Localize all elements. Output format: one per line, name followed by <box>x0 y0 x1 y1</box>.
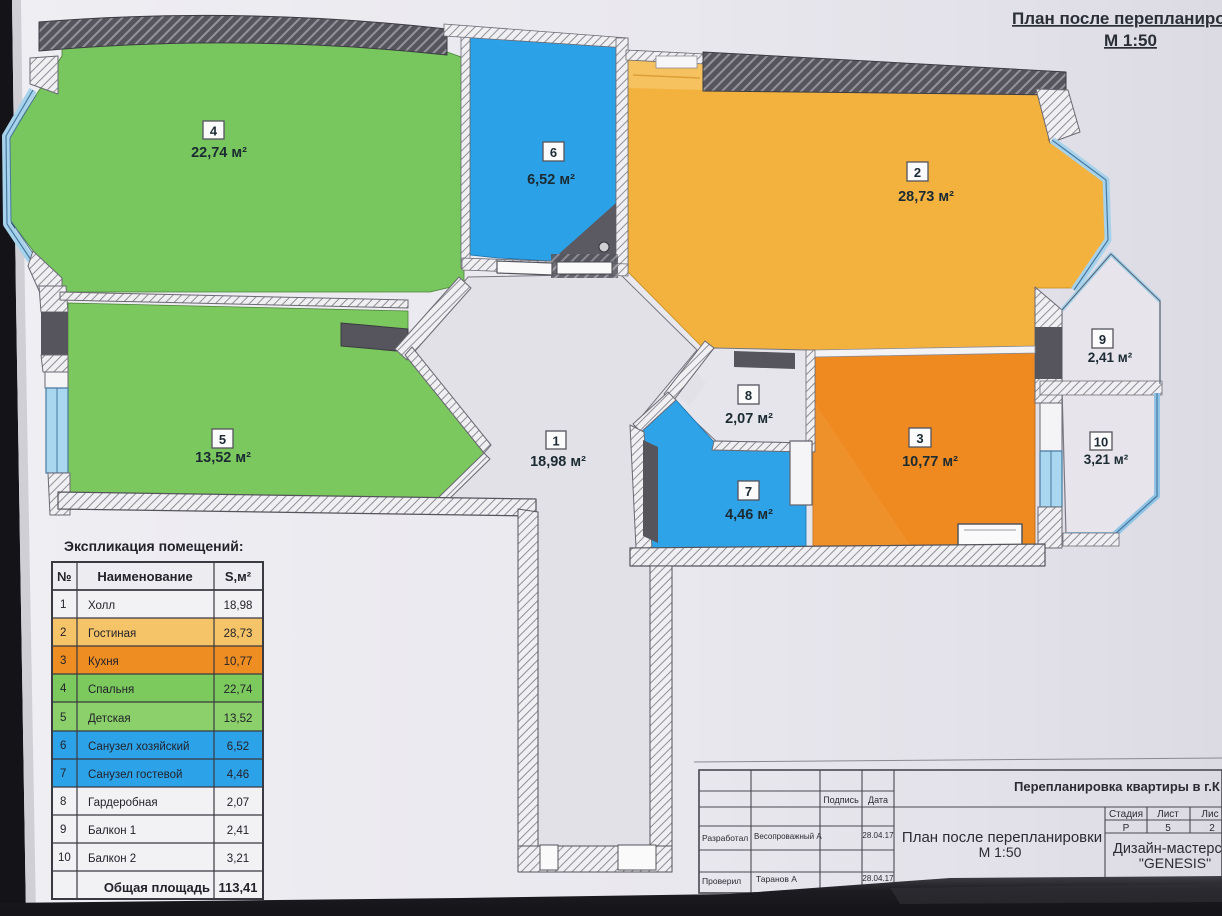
svg-text:6,52 м²: 6,52 м² <box>527 172 575 188</box>
svg-text:7: 7 <box>60 768 66 780</box>
svg-text:Детская: Детская <box>88 713 131 725</box>
svg-text:2,41 м²: 2,41 м² <box>1088 350 1133 365</box>
svg-text:13,52 м²: 13,52 м² <box>195 450 251 466</box>
svg-text:1: 1 <box>552 434 559 449</box>
svg-text:3: 3 <box>916 431 923 446</box>
svg-text:28.04.17: 28.04.17 <box>862 831 894 840</box>
svg-text:9: 9 <box>60 824 66 836</box>
svg-text:18,98 м²: 18,98 м² <box>530 454 586 470</box>
svg-text:3,21: 3,21 <box>227 853 249 865</box>
svg-text:Экспликация помещений:: Экспликация помещений: <box>64 538 243 554</box>
svg-text:2: 2 <box>1209 823 1215 834</box>
svg-text:6: 6 <box>60 740 66 752</box>
svg-text:7: 7 <box>745 484 752 499</box>
svg-text:10: 10 <box>58 852 71 864</box>
svg-text:Подпись: Подпись <box>823 795 859 805</box>
svg-text:№: № <box>57 569 72 584</box>
svg-text:Спальня: Спальня <box>88 684 134 696</box>
svg-text:8: 8 <box>60 796 66 808</box>
svg-text:10: 10 <box>1094 435 1108 450</box>
svg-text:Стадия: Стадия <box>1109 809 1143 820</box>
svg-text:Дата: Дата <box>868 795 888 805</box>
svg-text:5: 5 <box>219 432 226 447</box>
svg-text:Кухня: Кухня <box>88 656 119 668</box>
svg-text:Перепланировка квартиры в г.К: Перепланировка квартиры в г.К <box>1014 779 1220 794</box>
svg-text:5: 5 <box>1165 823 1171 834</box>
svg-text:2,07: 2,07 <box>227 797 249 809</box>
svg-text:Холл: Холл <box>88 600 115 612</box>
svg-text:10,77: 10,77 <box>224 656 253 668</box>
svg-text:Таранов А: Таранов А <box>756 874 797 884</box>
svg-text:Общая площадь: Общая площадь <box>104 880 210 895</box>
svg-text:4,46: 4,46 <box>227 769 249 781</box>
svg-text:Разработал: Разработал <box>702 833 748 843</box>
svg-text:4,46 м²: 4,46 м² <box>725 507 773 523</box>
svg-text:4: 4 <box>60 683 67 695</box>
svg-text:"GENESIS": "GENESIS" <box>1139 855 1211 871</box>
svg-text:28.04.17: 28.04.17 <box>862 874 894 883</box>
svg-text:18,98: 18,98 <box>224 600 253 612</box>
svg-text:План после перепланиров: План после перепланиров <box>1012 9 1222 28</box>
svg-text:22,74: 22,74 <box>224 684 253 696</box>
svg-text:2: 2 <box>914 165 921 180</box>
svg-text:Наименование: Наименование <box>97 569 192 584</box>
svg-text:S,м²: S,м² <box>225 569 252 584</box>
svg-text:2,41: 2,41 <box>227 825 249 837</box>
svg-text:28,73 м²: 28,73 м² <box>898 189 954 205</box>
svg-text:113,41: 113,41 <box>218 880 257 895</box>
svg-text:6,52: 6,52 <box>227 741 249 753</box>
svg-text:Гостиная: Гостиная <box>88 628 136 640</box>
svg-text:13,52: 13,52 <box>224 713 253 725</box>
svg-text:4: 4 <box>210 124 218 139</box>
svg-text:Балкон 2: Балкон 2 <box>88 853 136 865</box>
svg-text:Балкон 1: Балкон 1 <box>88 825 136 837</box>
svg-text:3: 3 <box>60 655 66 667</box>
svg-text:Проверил: Проверил <box>702 876 741 886</box>
svg-text:22,74 м²: 22,74 м² <box>191 145 247 161</box>
svg-text:3,21 м²: 3,21 м² <box>1084 452 1129 467</box>
svg-text:28,73: 28,73 <box>224 628 253 640</box>
svg-text:5: 5 <box>60 712 66 724</box>
svg-text:Санузел гостевой: Санузел гостевой <box>88 769 182 781</box>
svg-text:М 1:50: М 1:50 <box>979 844 1022 860</box>
svg-text:Весопроважный А: Весопроважный А <box>754 832 822 841</box>
svg-text:Санузел хозяйский: Санузел хозяйский <box>88 741 189 753</box>
svg-text:2,07 м²: 2,07 м² <box>725 411 773 427</box>
svg-text:1: 1 <box>60 599 66 611</box>
svg-text:Лист: Лист <box>1157 809 1179 820</box>
svg-text:8: 8 <box>745 388 752 403</box>
svg-text:2: 2 <box>60 627 66 639</box>
svg-text:Лис: Лис <box>1201 809 1218 820</box>
svg-text:М 1:50: М 1:50 <box>1104 31 1157 50</box>
svg-text:Гардеробная: Гардеробная <box>88 797 158 809</box>
svg-text:10,77 м²: 10,77 м² <box>902 454 958 470</box>
svg-text:9: 9 <box>1099 332 1106 347</box>
svg-text:6: 6 <box>550 145 557 160</box>
svg-text:Р: Р <box>1123 823 1130 834</box>
